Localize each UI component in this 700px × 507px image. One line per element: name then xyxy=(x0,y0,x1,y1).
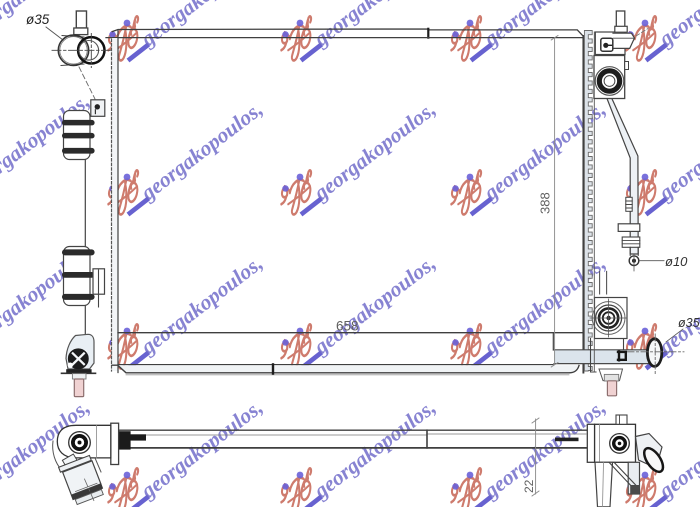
svg-text:658: 658 xyxy=(336,319,359,334)
svg-text:388: 388 xyxy=(538,192,553,214)
svg-text:ø10: ø10 xyxy=(665,254,688,269)
svg-text:22: 22 xyxy=(522,479,536,493)
svg-text:ø35: ø35 xyxy=(26,12,50,27)
svg-text:ø35: ø35 xyxy=(678,316,700,330)
